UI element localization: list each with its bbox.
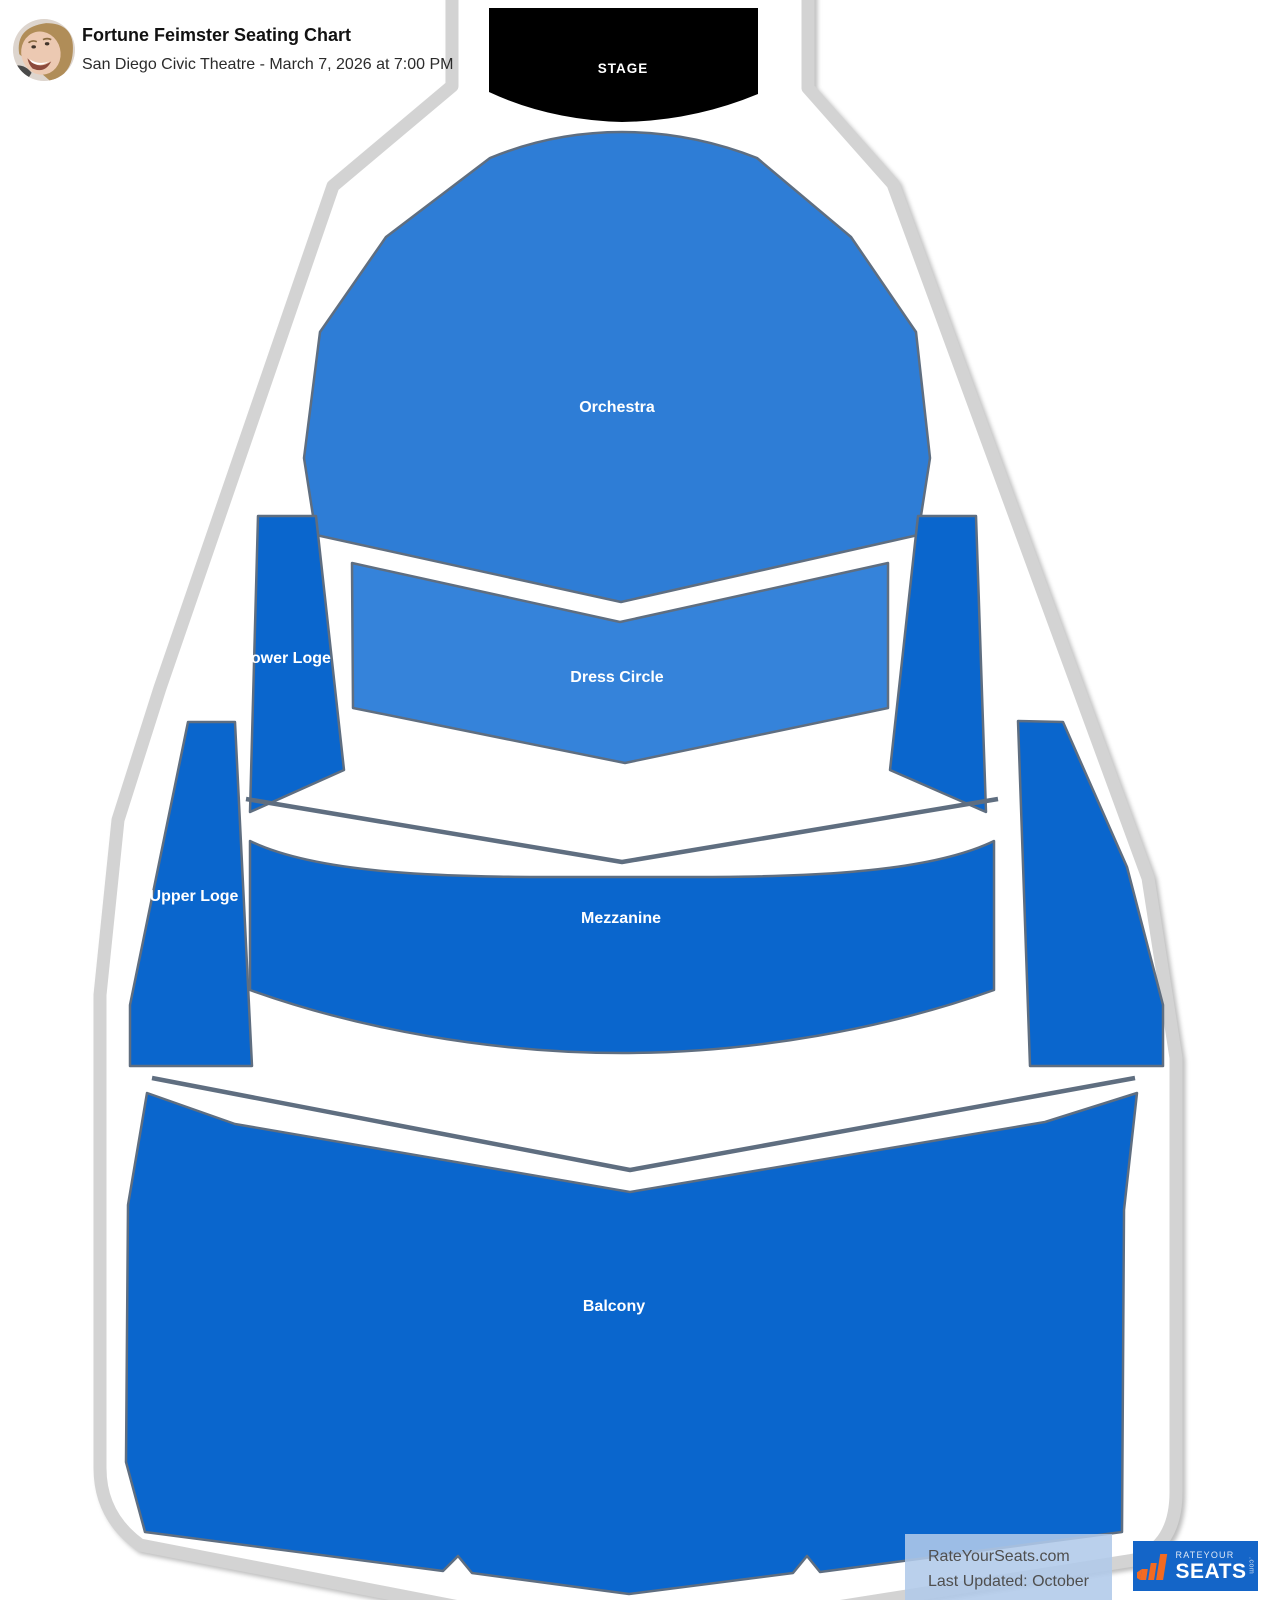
logo-tld: .com bbox=[1247, 1557, 1254, 1574]
logo-text-bottom: SEATS bbox=[1176, 1561, 1247, 1582]
event-subtitle: San Diego Civic Theatre - March 7, 2026 … bbox=[82, 55, 453, 75]
watermark-box: RateYourSeats.com Last Updated: October … bbox=[905, 1534, 1112, 1600]
stage-label: STAGE bbox=[598, 61, 649, 76]
logo-text-top: RATEYOUR bbox=[1176, 1551, 1247, 1560]
seating-chart-page: STAGE Orchestra Dress Circle Lower Loge … bbox=[0, 0, 1264, 1600]
watermark-updated: Last Updated: October 21, 2025 bbox=[928, 1569, 1112, 1600]
performer-avatar bbox=[13, 19, 75, 81]
watermark-site: RateYourSeats.com bbox=[928, 1544, 1112, 1569]
performer-photo-placeholder bbox=[13, 19, 75, 81]
rateyourseats-logo[interactable]: RATEYOUR SEATS .com bbox=[1133, 1541, 1258, 1591]
header: Fortune Feimster Seating Chart San Diego… bbox=[0, 0, 470, 90]
bar-chart-icon bbox=[1137, 1549, 1171, 1583]
page-title: Fortune Feimster Seating Chart bbox=[82, 24, 453, 46]
seating-chart-svg: STAGE Orchestra Dress Circle Lower Loge … bbox=[0, 0, 1264, 1600]
